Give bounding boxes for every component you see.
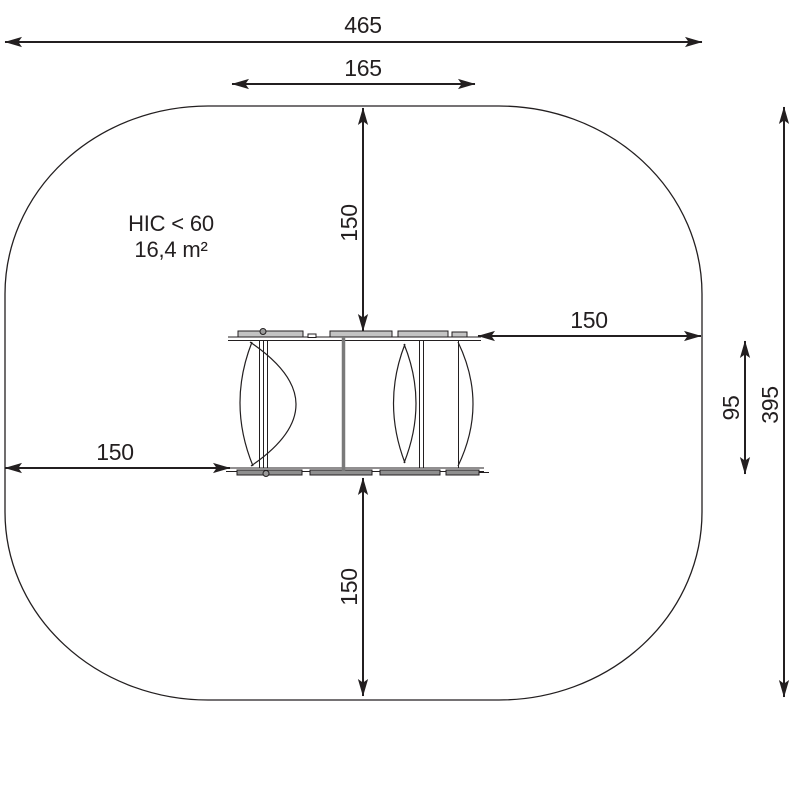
dimension-overall-width: 465 — [5, 12, 702, 42]
equipment-posts — [260, 337, 459, 471]
dimension-overall-width-label: 465 — [344, 12, 381, 38]
dimension-clearance-left: 150 — [5, 439, 230, 468]
dimension-clearance-right: 150 — [478, 307, 701, 336]
equipment-planks-top — [238, 331, 467, 338]
dimension-equipment-width: 165 — [232, 55, 475, 84]
dimension-equipment-depth: 95 — [718, 341, 745, 474]
dimension-overall-depth-label: 395 — [757, 386, 783, 423]
dimension-overall-depth: 395 — [757, 107, 784, 697]
hic-area-annotation: HIC < 60 16,4 m² — [128, 211, 214, 262]
dimension-equipment-width-label: 165 — [344, 55, 381, 81]
dimension-clearance-bottom-label: 150 — [336, 568, 362, 605]
equipment-planks-bottom — [237, 470, 489, 475]
safety-zone-outline — [5, 106, 702, 700]
equipment-top-view — [226, 329, 489, 477]
dimension-equipment-depth-label: 95 — [718, 396, 744, 421]
safety-zone-drawing: 465 165 150 150 150 150 95 395 HIC < 60 … — [0, 0, 800, 800]
dimension-clearance-right-label: 150 — [570, 307, 607, 333]
hic-value-label: HIC < 60 — [128, 211, 214, 236]
fixing-bump-top — [260, 329, 266, 335]
equipment-curved-elements — [240, 342, 473, 466]
dimension-clearance-left-label: 150 — [96, 439, 133, 465]
dimension-clearance-bottom: 150 — [336, 478, 363, 696]
equipment-rails — [226, 337, 484, 472]
technical-drawing-page: 465 165 150 150 150 150 95 395 HIC < 60 … — [0, 0, 800, 800]
area-value-label: 16,4 m² — [134, 237, 207, 262]
dimension-clearance-top-label: 150 — [336, 204, 362, 241]
dimension-clearance-top: 150 — [336, 108, 363, 331]
fixing-bump-bottom — [263, 471, 269, 477]
